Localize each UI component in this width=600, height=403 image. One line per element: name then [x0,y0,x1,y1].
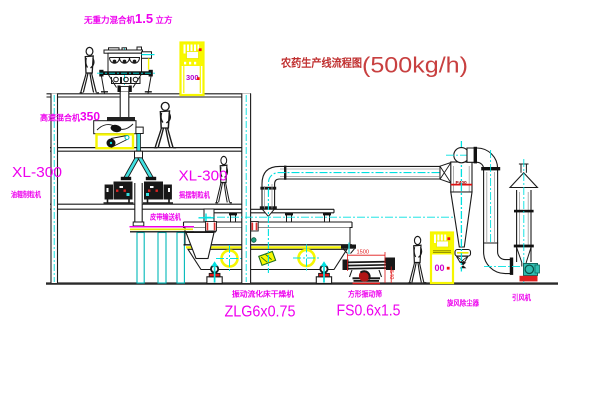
svg-text:1500: 1500 [357,250,369,256]
svg-text:引风机: 引风机 [512,293,532,302]
svg-text:方形振动筛: 方形振动筛 [348,290,383,299]
svg-text:540: 540 [388,270,394,279]
svg-text:XL-300: XL-300 [179,168,228,185]
svg-text:农药生产线流程图: 农药生产线流程图 [280,56,362,70]
svg-text:FS0.6x1.5: FS0.6x1.5 [337,303,401,320]
svg-text:00: 00 [435,263,445,273]
svg-text:旋风除尘器: 旋风除尘器 [446,299,479,308]
svg-text:ZLG6x0.75: ZLG6x0.75 [225,304,296,321]
svg-text:XL-300: XL-300 [12,164,62,181]
svg-text:300: 300 [186,73,199,82]
svg-text:油辊制粒机: 油辊制粒机 [11,190,41,199]
svg-text:摇摆制粒机: 摇摆制粒机 [179,191,210,200]
svg-text:(500kg/h): (500kg/h) [362,53,468,78]
svg-text:振动流化床干燥机: 振动流化床干燥机 [232,290,295,299]
svg-text:皮带输送机: 皮带输送机 [149,213,181,222]
